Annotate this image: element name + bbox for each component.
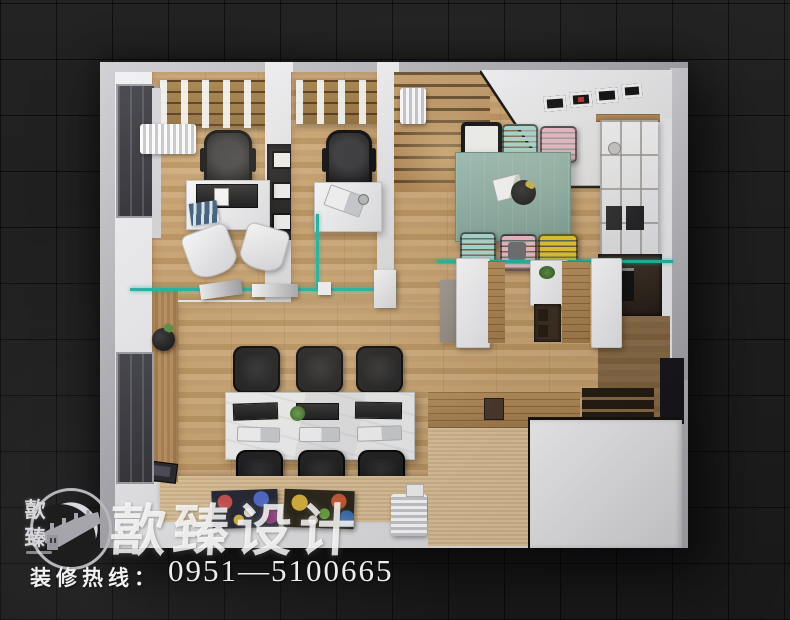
potted-plant xyxy=(539,266,555,279)
glass-wall-post xyxy=(252,284,298,297)
wood-feature-pillar xyxy=(152,288,178,482)
appliance xyxy=(606,206,622,230)
logo-subtext-illegible xyxy=(26,551,52,554)
outer-wall-right xyxy=(670,68,688,380)
frame-artwork xyxy=(578,97,584,102)
counter-device xyxy=(484,398,504,420)
storage-cabinet-wood xyxy=(562,261,590,343)
logo-frame xyxy=(544,95,567,111)
kitchen-cubby-shelves xyxy=(600,120,658,254)
sink-basin xyxy=(538,309,548,321)
logo-frame xyxy=(596,87,619,103)
table-plant xyxy=(290,406,305,421)
cup xyxy=(608,142,621,155)
office-mid-wall-shelving xyxy=(296,80,378,124)
sink-basin xyxy=(538,325,548,337)
monitor-flat xyxy=(233,402,279,421)
glass-wall-post xyxy=(318,282,331,295)
glass-partition-vertical xyxy=(316,214,319,290)
hotline-label: 装修热线： xyxy=(30,562,160,592)
logo-frame xyxy=(570,91,593,107)
picture-frame xyxy=(272,182,292,200)
file-holders xyxy=(189,200,220,226)
task-chair xyxy=(296,346,343,393)
gallery-wall-dark xyxy=(267,144,293,240)
logo-char-bottom: 臻 xyxy=(22,522,48,552)
monitor-flat xyxy=(355,402,402,420)
logo-frame xyxy=(622,83,643,98)
task-chair xyxy=(233,346,280,393)
task-chair xyxy=(356,346,403,393)
logo-char-top: 歖 xyxy=(22,494,48,524)
render-canvas: 歖 臻 歖臻设计 装修热线： 0951—5100665 xyxy=(0,0,790,620)
coffee-cup xyxy=(358,194,369,205)
chair-cushion xyxy=(508,242,526,260)
picture-frame xyxy=(272,151,292,169)
dark-void-right xyxy=(660,358,684,424)
floorplan-render xyxy=(100,62,688,548)
storage-cabinet-white xyxy=(456,258,490,348)
storage-cabinet-wood xyxy=(488,261,505,343)
executive-chair xyxy=(326,130,372,190)
window-bottom-left xyxy=(116,352,154,484)
serving-tray xyxy=(511,180,536,205)
hotline-phone-number: 0951—5100665 xyxy=(168,553,394,589)
outer-wall-left xyxy=(100,62,115,548)
keyboard xyxy=(237,426,280,442)
office-left-wall-shelving xyxy=(160,80,268,128)
keyboard xyxy=(357,425,402,442)
radiator-open-area xyxy=(400,88,426,124)
appliance xyxy=(626,206,644,230)
storage-cabinet-white xyxy=(591,258,622,348)
keyboard xyxy=(299,427,340,442)
curtain-panel xyxy=(152,88,161,238)
glass-wall-post xyxy=(374,270,396,308)
radiator-office-left xyxy=(140,124,196,154)
entry-white-slab xyxy=(530,420,682,548)
sink-unit xyxy=(534,304,561,342)
decorative-vase xyxy=(152,328,175,351)
